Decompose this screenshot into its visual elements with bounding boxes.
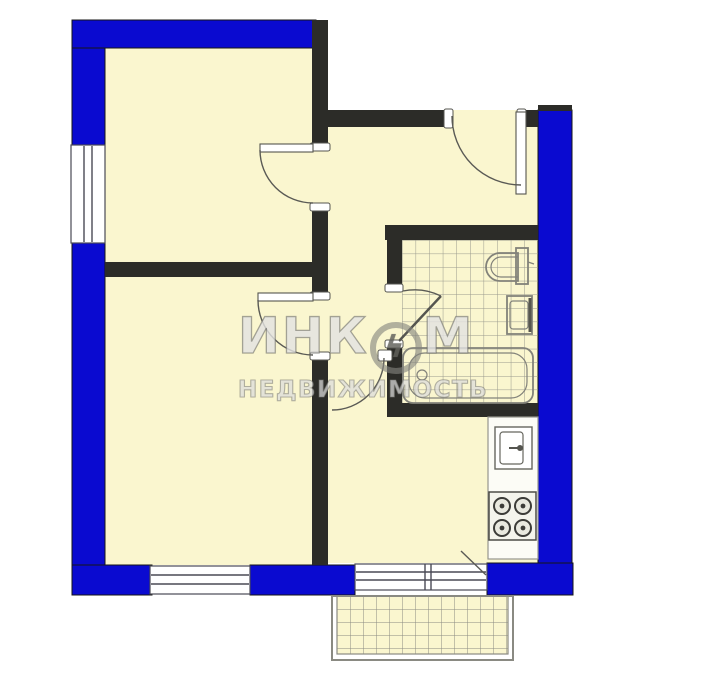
window-bottom-left-room [150,566,250,594]
stove [489,492,536,540]
door-jamb [385,284,403,292]
outer-wall-left-lower [72,243,105,595]
door-jamb [378,350,392,361]
wall-center-lower [312,360,328,565]
wall-hall-top-right [526,110,538,127]
window-left-room [71,145,105,243]
entrance-opening-floor [452,110,518,127]
kitchen-sink [495,427,532,469]
wall-hall-top [328,110,444,127]
balcony [332,596,513,660]
outer-wall-bottom-left [72,565,152,595]
outer-wall-bottom-middle [250,565,355,595]
wall-bathroom-top [385,225,538,240]
outer-wall-top [72,20,316,48]
door-jamb [310,352,330,360]
wall-bathroom-bottom [387,403,538,417]
outer-wall-right [538,110,572,593]
wall-rooms-divider [105,262,328,277]
right-wall-top-edge [538,105,572,111]
wall-center-mid2 [312,277,328,292]
wall-center-upper [312,20,328,151]
floorplan: ИНКϟМ НЕДВИЖИМОСТЬ [0,0,701,700]
room-top-left-floor [105,48,328,565]
floorplan-drawing [0,0,701,700]
outer-wall-bottom-right [487,563,573,595]
door-jamb [310,203,330,211]
